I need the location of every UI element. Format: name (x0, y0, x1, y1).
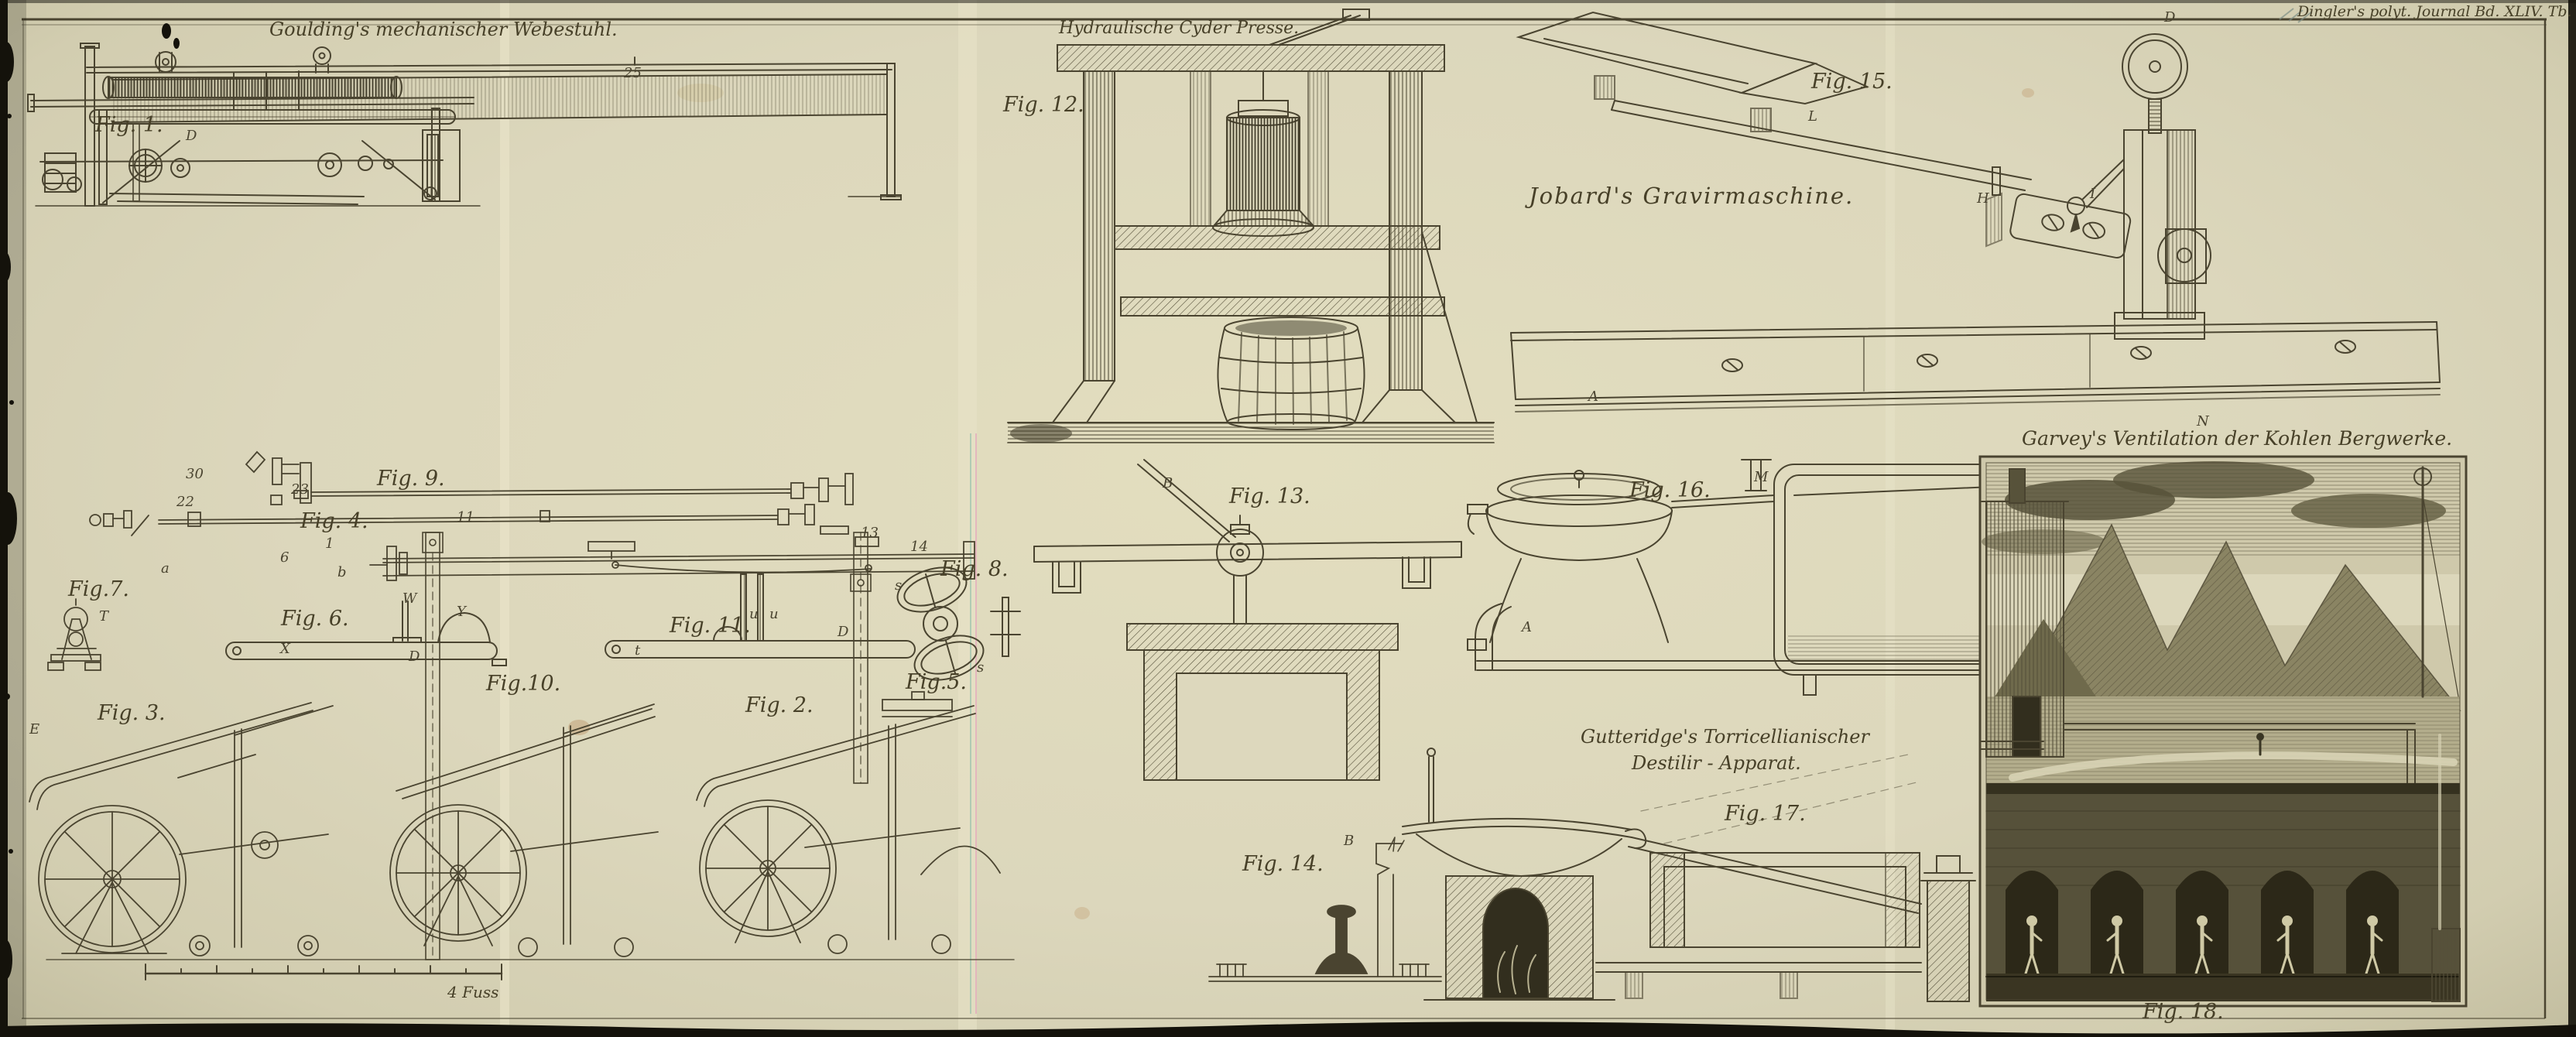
part-label: 13 (861, 525, 879, 541)
figure-label: Fig.5. (906, 670, 967, 694)
part-label: A (1588, 388, 1598, 405)
figure-label: Fig. 8. (940, 557, 1009, 581)
part-label: W (402, 590, 417, 607)
part-label: H (1977, 190, 1989, 207)
part-label: 1 (325, 536, 334, 552)
title-goulding-loom: Goulding's mechanischer Webestuhl. (269, 19, 618, 40)
fig3-machine-drawing (29, 703, 333, 956)
part-label: M (1754, 469, 1768, 485)
figure-label: Fig. 16. (1629, 478, 1711, 502)
part-label: D (2164, 9, 2175, 26)
part-label: 6 (280, 549, 289, 566)
figure-label: Fig. 3. (98, 701, 166, 725)
fig9-fig4-rods-drawing (90, 452, 975, 580)
part-label: 14 (910, 539, 928, 555)
journal-reference: Dingler's polyt. Journal Bd. XLIV. Tb. V… (2297, 3, 2576, 20)
fig12-press-drawing (1008, 9, 1494, 443)
part-label: 22 (176, 494, 194, 510)
figure-label: Fig.7. (68, 577, 129, 601)
fig15-jobard-drawing (1511, 12, 2440, 412)
part-label: s (977, 659, 984, 676)
fig5-drawing (882, 692, 952, 717)
figure-label: Fig.10. (486, 672, 560, 696)
figure-label: Fig. 18. (2143, 1000, 2224, 1024)
part-label: t (635, 642, 640, 659)
fig10-strip-drawing (423, 532, 871, 960)
engraving-plate: Goulding's mechanischer Webestuhl. Hydra… (0, 0, 2576, 1037)
figure-label: Fig. 4. (300, 509, 368, 533)
figure-label: Fig. 14. (1242, 852, 1324, 876)
part-label: D (409, 649, 420, 665)
figure-label: Fig. 12. (1003, 93, 1084, 117)
part-label: 11 (457, 509, 474, 525)
scale-bar-drawing (46, 960, 1014, 980)
title-garvey-mine-ventilation: Garvey's Ventilation der Kohlen Bergwerk… (2022, 427, 2452, 450)
part-label: X (280, 641, 290, 657)
plate-artwork (0, 0, 2576, 1037)
part-label: u (749, 606, 759, 622)
part-label: I (2090, 186, 2095, 202)
part-label: u (769, 606, 779, 622)
fig7-drawing (48, 599, 101, 670)
part-label: A (1522, 619, 1532, 635)
part-label: D (186, 128, 197, 144)
part-label: 25 (624, 65, 642, 81)
part-label: B (1163, 475, 1173, 491)
part-label: B (1344, 833, 1354, 849)
scale-bar-label: 4 Fuss (447, 983, 498, 1001)
part-label: a (161, 560, 170, 577)
part-label: 23 (291, 481, 309, 498)
fig11-drawing (605, 574, 915, 658)
fig2-machine-drawing (697, 706, 1000, 953)
figure-label: Fig. 6. (281, 607, 349, 631)
figure-label: Fig. 11. (670, 614, 751, 638)
figure-label: Fig. 15. (1811, 70, 1893, 94)
figure-label: Fig. 17. (1725, 802, 1806, 826)
title-gutteridge-line2: Destilir - Apparat. (1632, 752, 1801, 774)
figure-label: Fig. 9. (377, 467, 445, 491)
part-label: s (895, 577, 902, 594)
title-gutteridge-line1: Gutteridge's Torricellianischer (1581, 726, 1869, 748)
figure-label: Fig. 13. (1229, 484, 1310, 508)
part-label: b (337, 564, 347, 580)
figure-label: Fig. 1. (95, 113, 163, 137)
title-hydraulic-cider-press: Hydraulische Cyder Presse. (1059, 19, 1299, 38)
part-label: N (2197, 413, 2209, 430)
part-label: L (1808, 108, 1817, 125)
part-label: Y (457, 604, 466, 620)
fig18-mine-scene-drawing (1980, 457, 2466, 1006)
carriage-machine-2-drawing (390, 704, 658, 957)
part-label: D (838, 624, 848, 640)
part-label: E (29, 721, 39, 738)
part-label: 30 (186, 466, 204, 482)
figure-label: Fig. 2. (745, 693, 814, 717)
title-jobard-engraving-machine: Jobard's Gravirmaschine. (1529, 183, 1854, 209)
part-label: T (99, 608, 108, 625)
